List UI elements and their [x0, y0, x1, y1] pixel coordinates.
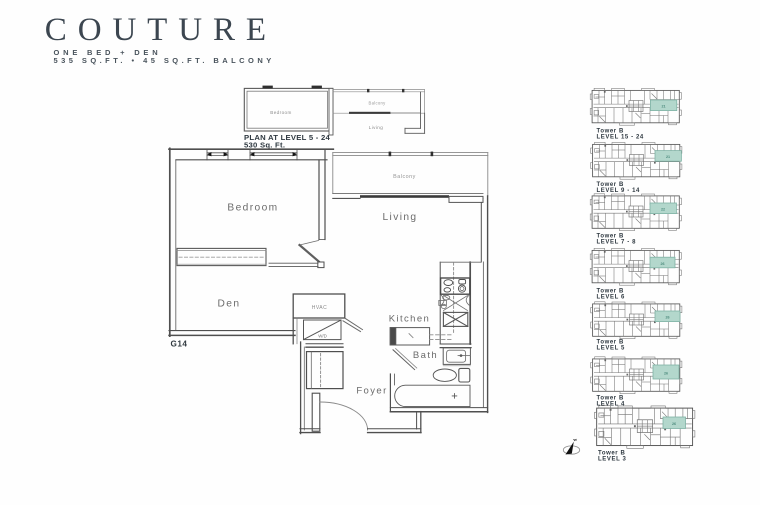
svg-text:Bedroom: Bedroom [227, 203, 278, 214]
svg-text:26: 26 [664, 372, 668, 376]
svg-text:Bath: Bath [413, 350, 438, 361]
svg-text:22: 22 [661, 208, 665, 212]
svg-text:LEVEL 7 - 8: LEVEL 7 - 8 [597, 240, 637, 246]
svg-text:Living: Living [382, 212, 417, 223]
svg-text:LEVEL 9 - 14: LEVEL 9 - 14 [597, 188, 641, 194]
svg-text:Foyer: Foyer [356, 386, 387, 397]
svg-text:LEVEL 15 - 24: LEVEL 15 - 24 [597, 134, 644, 140]
svg-text:LEVEL 5: LEVEL 5 [597, 346, 625, 352]
svg-text:535 SQ.FT. • 45 SQ.FT. BALCONY: 535 SQ.FT. • 45 SQ.FT. BALCONY [54, 56, 275, 65]
svg-text:Kitchen: Kitchen [389, 314, 431, 325]
svg-text:LEVEL 6: LEVEL 6 [597, 295, 625, 301]
svg-text:Den: Den [218, 299, 241, 310]
svg-text:Living: Living [369, 125, 383, 130]
svg-text:COUTURE: COUTURE [45, 12, 277, 48]
svg-text:HVAC: HVAC [312, 305, 328, 311]
svg-text:26: 26 [665, 316, 669, 320]
svg-text:Balcony: Balcony [369, 101, 387, 106]
svg-text:Bedroom: Bedroom [270, 110, 291, 115]
svg-text:G14: G14 [171, 339, 188, 348]
svg-text:21: 21 [666, 155, 670, 159]
svg-text:LEVEL 3: LEVEL 3 [598, 456, 626, 462]
svg-text:530 Sq. Ft.: 530 Sq. Ft. [244, 141, 285, 150]
svg-text:26: 26 [672, 422, 676, 426]
svg-text:W/D: W/D [318, 334, 327, 339]
svg-text:LEVEL 4: LEVEL 4 [597, 401, 625, 407]
svg-text:26: 26 [660, 262, 664, 266]
svg-text:21: 21 [661, 105, 665, 109]
svg-text:Balcony: Balcony [393, 174, 416, 180]
